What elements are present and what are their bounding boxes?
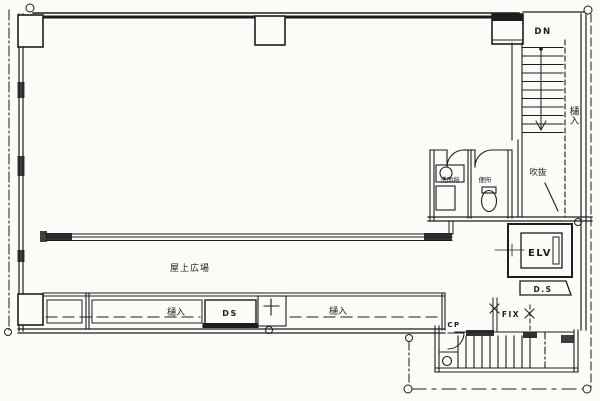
fix-label: FIX (502, 310, 520, 319)
gutter-label-middle: 樋入 (329, 305, 347, 316)
stair-treads (458, 336, 530, 368)
void-label: 吹抜 (529, 167, 547, 177)
stair-treads (522, 48, 563, 133)
grid-marker (5, 329, 12, 336)
grid-marker (584, 6, 592, 14)
upper-staircase: DN 樋入 (493, 27, 579, 217)
fix-window-area: FIX (490, 298, 534, 332)
right-wall (581, 14, 586, 330)
main-area-label: 屋上広場 (170, 262, 210, 273)
gutter-label-left: 樋入 (167, 306, 185, 317)
grid-marker (404, 385, 412, 393)
floor-plan-canvas: DN 樋入 洗面所 便所 (0, 0, 600, 401)
cp-label: CP (447, 321, 460, 329)
elevator-label: ELV (528, 248, 552, 259)
floor-plan-page: DN 樋入 洗面所 便所 (0, 0, 600, 401)
window-band (40, 221, 453, 242)
column-box (255, 16, 285, 45)
site-boundary (5, 4, 593, 393)
washbasin (436, 165, 464, 210)
toilet-label: 便所 (479, 175, 493, 184)
elevator-shaft: ELV (495, 224, 572, 277)
left-wall (18, 14, 25, 331)
duct-shaft-right-label: D.S (534, 285, 553, 294)
grid-marker (583, 385, 591, 393)
grid-marker (26, 4, 34, 12)
door-swing (447, 150, 492, 167)
column-box (18, 15, 43, 47)
duct-shaft-bottom: DS (205, 300, 256, 326)
vent-box (258, 296, 286, 326)
bottom-strip: DS 樋入 樋入 (43, 293, 445, 330)
grid-marker (406, 335, 413, 342)
cp-door: CP (446, 321, 468, 349)
down-label: DN (534, 27, 551, 37)
duct-shaft-bottom-label: DS (222, 309, 237, 318)
washroom-label: 洗面所 (440, 175, 460, 184)
stair-direction-arrow (536, 47, 546, 130)
void-room: 吹抜 (518, 140, 558, 217)
column-box (18, 294, 43, 325)
toilet-block: 洗面所 便所 (428, 150, 592, 221)
columns (18, 14, 523, 325)
toilet-fixture (482, 187, 497, 212)
gutter-label-right: 樋入 (568, 105, 580, 125)
duct-shaft-right: D.S (520, 281, 571, 295)
bottom-wall (18, 329, 445, 333)
